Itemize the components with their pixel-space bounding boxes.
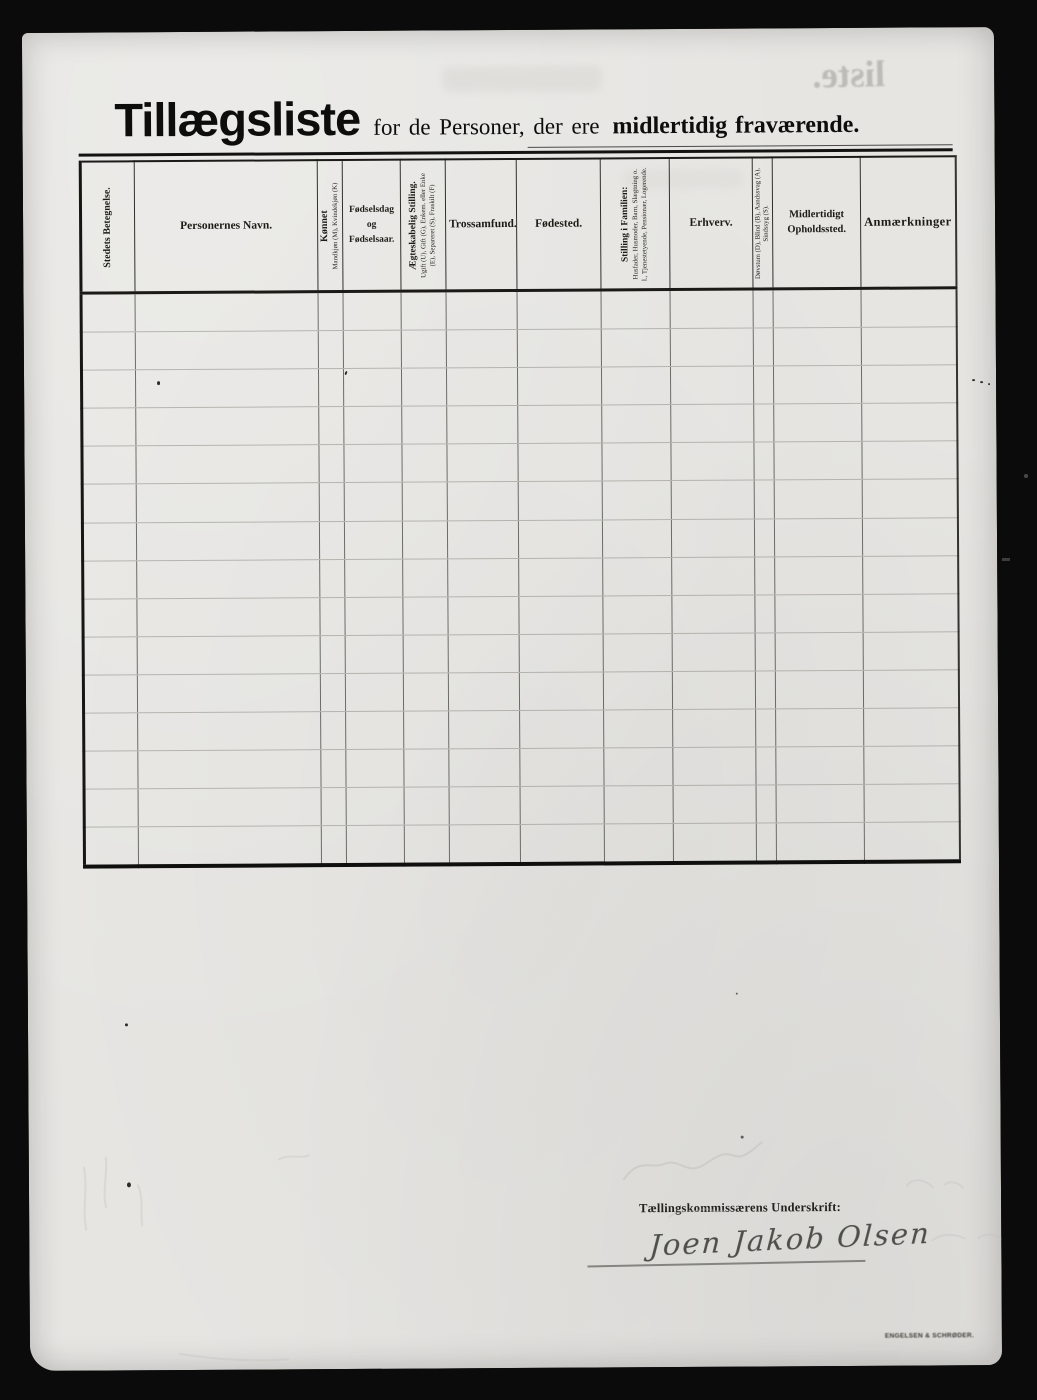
title-rule-upper — [528, 144, 953, 148]
empty-cell — [864, 708, 959, 747]
paper-speck — [125, 1023, 128, 1026]
empty-cell — [861, 365, 956, 404]
col-header-anmaerkninger: Anmærkninger — [860, 156, 956, 288]
empty-cell — [82, 446, 136, 484]
empty-cell — [602, 443, 671, 482]
col-label: Trossamfund. — [449, 217, 513, 232]
empty-cell — [138, 712, 321, 751]
col-label: Fødested. — [520, 217, 597, 232]
empty-cell — [517, 367, 601, 406]
empty-cell — [776, 708, 864, 747]
col-header-erhverv: Erhverv. — [669, 158, 753, 290]
empty-cell — [345, 597, 403, 635]
empty-cell — [603, 595, 672, 634]
empty-cell — [318, 292, 343, 331]
empty-cell — [82, 522, 136, 560]
signature-label: Tællingskommissærens Underskrift: — [639, 1200, 841, 1216]
empty-cell — [320, 597, 345, 635]
col-header-fodselsdag: Fødselsdag og Fødselsaar. — [342, 160, 401, 292]
empty-cell — [671, 480, 754, 519]
col-label: Midlertidigt Opholdssted. — [776, 208, 857, 238]
table-row — [84, 708, 959, 751]
table-row — [83, 670, 958, 713]
empty-cell — [670, 289, 753, 329]
paper-speck — [127, 1182, 131, 1187]
empty-cell — [518, 520, 602, 559]
empty-cell — [82, 408, 136, 446]
empty-cell — [83, 675, 137, 713]
empty-cell — [776, 823, 864, 863]
printer-mark: ENGELSEN & SCHRØDER. — [885, 1332, 974, 1340]
empty-cell — [447, 482, 518, 521]
col-header-kjonnet: Kønnet Mandkjøn (M), Kvindekjøn (K) — [317, 160, 343, 292]
col-label: Anmærkninger — [864, 214, 952, 230]
empty-cell — [401, 291, 446, 330]
scan-margin-speck — [1002, 558, 1010, 561]
empty-cell — [754, 518, 774, 556]
empty-cell — [84, 713, 138, 751]
empty-cell — [776, 785, 864, 824]
empty-cell — [83, 560, 137, 598]
empty-cell — [402, 444, 447, 482]
empty-cell — [83, 599, 137, 637]
empty-cell — [81, 293, 135, 332]
empty-cell — [861, 327, 956, 366]
col-sublabel: Husfader, Husmoder, Barn, Slægtning o. l… — [632, 166, 649, 282]
empty-cell — [863, 594, 958, 633]
empty-cell — [756, 747, 776, 785]
form-title-emphasis: midlertidig fraværende. — [612, 112, 859, 141]
empty-cell — [604, 824, 673, 864]
empty-cell — [321, 826, 346, 866]
empty-cell — [136, 407, 319, 446]
empty-cell — [756, 823, 776, 863]
empty-cell — [449, 787, 520, 826]
empty-cell — [755, 633, 775, 671]
empty-cell — [404, 825, 449, 865]
empty-cell — [136, 445, 319, 484]
empty-cell — [449, 749, 520, 788]
empty-cell — [135, 331, 318, 370]
empty-cell — [862, 441, 957, 480]
empty-cell — [864, 784, 959, 823]
empty-cell — [320, 635, 345, 673]
empty-cell — [754, 480, 774, 518]
table-row — [83, 555, 958, 598]
empty-cell — [318, 331, 343, 369]
empty-cell — [446, 368, 517, 407]
empty-cell — [138, 826, 321, 867]
empty-cell — [81, 332, 135, 370]
empty-cell — [755, 595, 775, 633]
empty-cell — [518, 481, 602, 520]
table-row — [81, 365, 956, 408]
empty-cell — [344, 521, 402, 559]
empty-cell — [137, 674, 320, 713]
empty-cell — [774, 442, 862, 481]
empty-cell — [346, 787, 404, 825]
col-label: Kønnet — [320, 168, 331, 284]
empty-cell — [673, 823, 756, 863]
empty-cell — [754, 404, 774, 442]
header-row: Stedets Betegnelse. Personernes Navn. Kø… — [80, 156, 956, 293]
empty-cell — [345, 635, 403, 673]
empty-cell — [344, 445, 402, 483]
empty-cell — [345, 673, 403, 711]
empty-cell — [403, 673, 448, 711]
empty-cell — [519, 672, 603, 711]
empty-cell — [345, 559, 403, 597]
empty-cell — [774, 480, 862, 519]
empty-cell — [404, 787, 449, 825]
form-title: Tillægsliste for de Personer, der ere mi… — [114, 92, 859, 144]
empty-cell — [673, 709, 756, 748]
empty-cell — [862, 517, 957, 556]
col-label: Personernes Navn. — [138, 219, 314, 234]
empty-cell — [755, 557, 775, 595]
empty-cell — [671, 404, 754, 443]
table-row — [81, 288, 956, 332]
form-title-main: Tillægsliste — [114, 95, 360, 144]
empty-cell — [773, 327, 861, 366]
empty-cell — [320, 673, 345, 711]
table-row — [81, 327, 956, 370]
table-row — [82, 441, 957, 484]
col-header-personernes-navn: Personernes Navn. — [134, 160, 318, 293]
paper-sheet: liste. Tillægsliste for de Personer, der… — [22, 27, 1002, 1371]
empty-cell — [343, 291, 401, 330]
empty-cell — [602, 481, 671, 520]
table-row — [84, 784, 959, 827]
col-header-fodested: Fødested. — [516, 158, 601, 290]
empty-cell — [138, 750, 321, 789]
signature-underline — [587, 1260, 865, 1268]
table-row — [83, 594, 958, 637]
empty-cell — [135, 292, 318, 332]
empty-cell — [604, 710, 673, 749]
empty-cell — [448, 634, 519, 673]
empty-cell — [520, 824, 604, 864]
empty-cell — [136, 521, 319, 560]
empty-cell — [773, 288, 861, 328]
empty-cell — [775, 670, 863, 709]
empty-cell — [519, 634, 603, 673]
col-sublabel: Mandkjøn (M), Kvindekjøn (K) — [332, 168, 341, 284]
empty-cell — [448, 672, 519, 711]
empty-cell — [754, 442, 774, 480]
table-body — [81, 288, 959, 867]
col-header-midlertidigt-opholdssted: Midlertidigt Opholdssted. — [772, 157, 861, 289]
col-header-stilling-i-familien: Stilling i Familien: Husfader, Husmoder,… — [600, 158, 670, 290]
empty-cell — [602, 519, 671, 558]
empty-cell — [672, 633, 755, 672]
empty-cell — [604, 748, 673, 787]
empty-cell — [138, 788, 321, 827]
empty-cell — [320, 559, 345, 597]
empty-cell — [518, 405, 602, 444]
col-label: Fødselsdag og Fødselsaar. — [346, 203, 397, 247]
empty-cell — [864, 746, 959, 785]
empty-cell — [346, 825, 404, 865]
empty-cell — [446, 330, 517, 369]
empty-cell — [520, 748, 604, 787]
empty-cell — [84, 827, 138, 867]
form-title-mid: for de Personer, der ere — [373, 113, 599, 140]
empty-cell — [402, 482, 447, 520]
census-table: Stedets Betegnelse. Personernes Navn. Kø… — [79, 155, 961, 869]
empty-cell — [319, 407, 344, 445]
empty-cell — [672, 671, 755, 710]
empty-cell — [673, 785, 756, 824]
empty-cell — [601, 329, 670, 368]
empty-cell — [672, 595, 755, 634]
empty-cell — [404, 749, 449, 787]
scanned-census-form: { "document": { "title": { "main": "Till… — [0, 0, 1037, 1400]
empty-cell — [346, 711, 404, 749]
col-label: Ægteskabelig Stilling. — [409, 167, 420, 283]
empty-cell — [136, 483, 319, 522]
empty-cell — [753, 289, 773, 328]
empty-cell — [82, 484, 136, 522]
empty-cell — [343, 330, 401, 368]
paper-speck — [972, 379, 975, 381]
empty-cell — [775, 556, 863, 595]
empty-cell — [756, 785, 776, 823]
empty-cell — [137, 559, 320, 598]
empty-cell — [670, 328, 753, 367]
paper-speck — [736, 993, 738, 995]
empty-cell — [601, 367, 670, 406]
empty-cell — [753, 366, 773, 404]
empty-cell — [756, 709, 776, 747]
col-label: Døvstum (D), Blind (B), Aandssvag (A), S… — [754, 165, 772, 281]
empty-cell — [603, 557, 672, 596]
empty-cell — [135, 369, 318, 408]
col-header-dovstum: Døvstum (D), Blind (B), Aandssvag (A), S… — [752, 157, 773, 289]
empty-cell — [84, 751, 138, 789]
empty-cell — [670, 366, 753, 405]
empty-cell — [671, 442, 754, 481]
empty-cell — [862, 403, 957, 442]
empty-cell — [402, 406, 447, 444]
empty-cell — [517, 290, 601, 330]
empty-cell — [319, 483, 344, 521]
empty-cell — [672, 557, 755, 596]
empty-cell — [863, 670, 958, 709]
empty-cell — [403, 635, 448, 673]
empty-cell — [447, 520, 518, 559]
col-label: Erhverv. — [673, 216, 749, 231]
empty-cell — [401, 330, 446, 368]
empty-cell — [81, 370, 135, 408]
table-row — [82, 479, 957, 522]
empty-cell — [517, 329, 601, 368]
empty-cell — [343, 368, 401, 406]
col-label: Stilling i Familien: — [621, 166, 632, 282]
signature-handwriting: Joen Jakob Olsen — [648, 1216, 931, 1263]
table-row — [84, 746, 959, 789]
empty-cell — [449, 825, 520, 865]
empty-cell — [321, 788, 346, 826]
col-header-aegteskabelig-stilling: Ægteskabelig Stilling. Ugift (U), Gift (… — [400, 159, 446, 291]
col-sublabel: Ugift (U), Gift (G), Enkem. eller Enke (… — [420, 167, 437, 283]
empty-cell — [520, 786, 604, 825]
empty-cell — [321, 712, 346, 750]
empty-cell — [321, 750, 346, 788]
col-label: Stedets Betegnelse. — [103, 169, 114, 285]
empty-cell — [344, 406, 402, 444]
paper-speck — [980, 381, 983, 383]
scan-margin-speck — [1024, 474, 1028, 478]
empty-cell — [603, 671, 672, 710]
empty-cell — [447, 444, 518, 483]
empty-cell — [671, 519, 754, 558]
empty-cell — [774, 518, 862, 557]
empty-cell — [449, 710, 520, 749]
paper-speck — [157, 381, 160, 385]
bleedthrough-smudge — [442, 65, 602, 92]
empty-cell — [519, 596, 603, 635]
empty-cell — [604, 786, 673, 825]
empty-cell — [346, 749, 404, 787]
table-row — [83, 632, 958, 675]
empty-cell — [403, 559, 448, 597]
table-row — [84, 822, 959, 867]
col-header-stedets-betegnelse: Stedets Betegnelse. — [80, 161, 135, 293]
empty-cell — [861, 288, 956, 328]
empty-cell — [520, 710, 604, 749]
empty-cell — [603, 633, 672, 672]
paper-speck — [988, 383, 990, 385]
empty-cell — [446, 290, 517, 330]
empty-cell — [404, 711, 449, 749]
empty-cell — [864, 822, 959, 862]
empty-cell — [83, 637, 137, 675]
empty-cell — [401, 368, 446, 406]
empty-cell — [753, 328, 773, 366]
empty-cell — [863, 632, 958, 671]
empty-cell — [318, 369, 343, 407]
empty-cell — [319, 521, 344, 559]
empty-cell — [137, 597, 320, 636]
col-header-trossamfund: Trossamfund. — [445, 159, 517, 291]
empty-cell — [137, 636, 320, 675]
empty-cell — [448, 558, 519, 597]
empty-cell — [448, 596, 519, 635]
empty-cell — [402, 520, 447, 558]
table-row — [82, 403, 957, 446]
empty-cell — [519, 558, 603, 597]
table-row — [82, 517, 957, 560]
empty-cell — [776, 746, 864, 785]
empty-cell — [773, 366, 861, 405]
empty-cell — [403, 597, 448, 635]
empty-cell — [863, 555, 958, 594]
empty-cell — [602, 405, 671, 444]
empty-cell — [518, 443, 602, 482]
empty-cell — [775, 594, 863, 633]
empty-cell — [344, 483, 402, 521]
empty-cell — [862, 479, 957, 518]
empty-cell — [84, 789, 138, 827]
empty-cell — [775, 632, 863, 671]
paper-speck — [741, 1136, 744, 1139]
empty-cell — [755, 671, 775, 709]
empty-cell — [601, 290, 670, 330]
empty-cell — [319, 445, 344, 483]
empty-cell — [673, 747, 756, 786]
empty-cell — [774, 404, 862, 443]
empty-cell — [447, 406, 518, 445]
